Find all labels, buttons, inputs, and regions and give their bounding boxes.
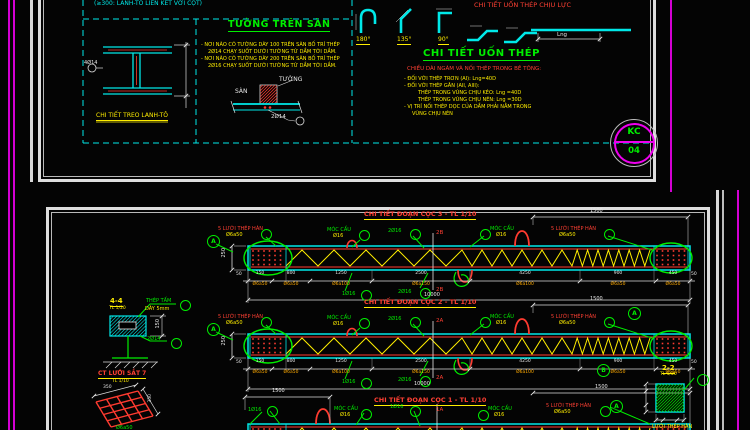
callout-circle [359, 318, 370, 329]
stamp-code: KC [611, 127, 657, 137]
pile-dim-spacing: Ø6a100 [326, 371, 356, 376]
pile2-bar2-label-bottom: 2Ø16 [398, 378, 411, 383]
pile3-bar2-label: 2Ø16 [388, 229, 401, 234]
bend-detail-subtitle: CHIỀU DÀI NGÀM VÀ NỐI THÉP TRONG BÊ TÔNG… [407, 67, 541, 73]
slab-bar-label: 2Ø14 [271, 115, 286, 121]
pile2-mesh-sub-right: Ø6a50 [559, 321, 576, 326]
slab-label: SÀN [235, 89, 248, 95]
pile2-section-tick-bottom: 2A [436, 376, 443, 382]
pile3-edge-dim-right: 50 [691, 273, 697, 278]
pile2-edge-dim-left: 50 [236, 361, 242, 366]
cad-canvas: (≥300: LANH-TÔ LIÊN KẾT VỚI CỘT) 4Ø14 CH… [0, 0, 750, 430]
pile-dim-value: 4250 [510, 360, 540, 365]
pile2-dim-250: 250 [222, 336, 227, 346]
pile3-edge-dim-left: 50 [236, 273, 242, 278]
pile-dim-spacing: Ø6a50 [245, 371, 275, 376]
pile1-mesh-sub-right: Ø6a50 [554, 410, 571, 415]
pile-dim-spacing: Ø6a50 [658, 371, 688, 376]
callout-circle [410, 317, 421, 328]
pile2-total-dim: 10000 [414, 382, 430, 387]
wall-on-slab-title: TƯỜNG TRÊN SÀN [228, 20, 330, 32]
pile-dim-spacing: Ø6a50 [276, 371, 306, 376]
pile-dim-value: 450 [658, 360, 688, 365]
pile-dim-spacing: Ø6a100 [326, 283, 356, 288]
pile1-bar1-label-mid: 1Ø16 [390, 405, 403, 410]
plate-label: THÉP TẤM [146, 299, 171, 304]
pile-dim-spacing: Ø6a100 [510, 371, 540, 376]
callout-circle [410, 229, 421, 240]
pile1-hook-sub-1: Ø16 [340, 413, 350, 418]
sheet-number-stamp: KC 04 [610, 119, 658, 167]
pile3-flag-a: A [207, 235, 220, 248]
section-2-2-bottom-label: LƯỚI THÉP HÀN [652, 425, 692, 430]
pile-dim-value: 4250 [510, 272, 540, 277]
callout-circle [359, 230, 370, 241]
bend-note-line: - ĐỐI VỚI THÉP TRƠN (AI): Lng=40D [404, 77, 496, 82]
pile1-bar1-label-left: 1Ø16 [248, 408, 261, 413]
bend-note-line: VÙNG CHỊU NÉN [412, 112, 453, 117]
callout-circle [604, 317, 615, 328]
wall-note-line: 2Ø14 CHẠY SUỐT DƯỚI TƯỜNG TỪ DẦM TỚI DẦM… [208, 50, 337, 55]
pile3-bar1-label-bottom: 1Ø16 [342, 292, 355, 297]
pile-dim-value: 900 [603, 272, 633, 277]
bend-angle-90: 90° [438, 37, 449, 45]
pile1-hook-sub-2: Ø16 [494, 413, 504, 418]
lintel-bar-label: 4Ø14 [84, 61, 97, 66]
pile-dim-spacing: Ø6a100 [510, 283, 540, 288]
pile-dim-spacing: Ø6a50 [276, 283, 306, 288]
pile-dim-value: 900 [603, 360, 633, 365]
pile1-dim-1500-right: 1500 [595, 385, 608, 390]
wall-note-line: - NƠI NÀO CÓ TƯỜNG DÀY 200 TRÊN SÀN BỐ T… [201, 57, 340, 62]
pile3-mesh-sub-right: Ø6a50 [559, 233, 576, 238]
pile3-mesh-sub-left: Ø6a50 [226, 233, 243, 238]
pile-dim-value: 800 [276, 272, 306, 277]
pile1-section-tick-top: 1A [436, 408, 443, 414]
bend-detail-title: CHI TIẾT UỐN THÉP [423, 49, 540, 61]
pile2-dim-1500: 1500 [590, 297, 603, 302]
pile1-flag-a-right: A [610, 400, 623, 413]
pile2-edge-dim-right: 50 [691, 361, 697, 366]
mesh-detail-scale: TL 1/10 [112, 380, 129, 385]
bend-note-line: - ĐỐI VỚI THÉP GÂN (AII, AIII): [404, 84, 480, 89]
pile2-bar2-label: 2Ø16 [388, 317, 401, 322]
wall-note-line: - NƠI NÀO CÓ TƯỜNG DÀY 100 TRÊN SÀN BỐ T… [201, 43, 340, 48]
mesh-sub-label: Ø6a50 [116, 426, 133, 430]
bend-note-line: - VỊ TRÍ NỐI THÉP DỌC CỦA DẦM PHẢI NẰM T… [404, 105, 531, 110]
pile-dim-value: 150 [245, 360, 275, 365]
pile3-bar2-label-bottom: 2Ø16 [398, 290, 411, 295]
lng-dim-label: Lng [557, 33, 567, 39]
pile3-hook-sub-2: Ø16 [496, 233, 506, 238]
pile-dim-value: 1250 [326, 272, 356, 277]
callout-circle [361, 378, 372, 389]
callout-circle [261, 317, 272, 328]
pile-dim-value: 2500 [406, 360, 436, 365]
pile2-hook-sub-1: Ø16 [333, 322, 343, 327]
pile3-hook-sub-1: Ø16 [333, 234, 343, 239]
pile-dim-value: 150 [245, 272, 275, 277]
callout-circle [171, 338, 182, 349]
callout-circle [361, 409, 372, 420]
pile2-flag-a-right: A [628, 307, 641, 320]
plate-bar-label: 2Ø14 [147, 337, 160, 342]
pile-dim-value: 1250 [326, 360, 356, 365]
callout-circle [604, 229, 615, 240]
pile2-mesh-sub-left: Ø6a50 [226, 321, 243, 326]
pile2-section-tick-top: 2A [436, 319, 443, 325]
pile-dim-spacing: Ø6a50 [603, 283, 633, 288]
callout-circle [261, 229, 272, 240]
section-4-4-scale: TL 1/20 [109, 307, 126, 312]
bend-note-line: THÉP TRONG VÙNG CHỊU NÉN: Lng =30D [418, 98, 522, 103]
pile-dim-spacing: Ø6a50 [245, 283, 275, 288]
plate-dim-150: 150 [156, 319, 161, 329]
pile-dim-value: 800 [276, 360, 306, 365]
callout-circle [697, 374, 709, 386]
bend-note-line: THÉP TRONG VÙNG CHỊU KÉO: Lng =40D [418, 91, 521, 96]
pile-dim-spacing: Ø6a150 [406, 371, 436, 376]
wall-note-line: 2Ø16 CHẠY SUỐT DƯỚI TƯỜNG TỪ DẦM TỚI DẦM… [208, 64, 337, 69]
callout-circle [180, 300, 191, 311]
pile3-dim-1500: 1500 [590, 209, 603, 214]
pile3-title: CHI TIẾT ĐOẠN CỌC 3 - TL 1/10 [364, 211, 476, 220]
mesh-dim-350a: 350 [103, 386, 112, 391]
bend-angle-180: 180° [356, 37, 370, 45]
pile2-hook-sub-2: Ø16 [496, 321, 506, 326]
pile2-bar1-label-bottom: 1Ø16 [342, 380, 355, 385]
pile-dim-spacing: Ø6a50 [658, 283, 688, 288]
wall-label: TƯỜNG [279, 77, 302, 83]
lintel-note: (≥300: LANH-TÔ LIÊN KẾT VỚI CỘT) [94, 1, 202, 7]
mesh-detail-title: CT LƯỚI SẮT 7 [98, 371, 146, 379]
pile3-section-tick-top: 2B [436, 231, 443, 237]
stamp-divider [614, 141, 654, 143]
pile-dim-value: 450 [658, 272, 688, 277]
callout-circle [267, 406, 278, 417]
callout-circle [410, 406, 421, 417]
pile2-title: CHI TIẾT ĐOẠN CỌC 2 - TL 1/10 [364, 299, 476, 308]
stamp-number: 04 [611, 146, 657, 156]
pile2-flag-a: A [207, 323, 220, 336]
pile-dim-spacing: Ø6a150 [406, 283, 436, 288]
pile-dim-value: 2500 [406, 272, 436, 277]
bend-angle-135: 135° [397, 37, 411, 45]
lintel-detail-title: CHI TIẾT TREO LANH-TÔ [96, 113, 168, 121]
bend-detail-top-title: CHI TIẾT UỐN THÉP CHỊU LỰC [474, 2, 571, 9]
mesh-dim-350b: 350 [149, 394, 154, 403]
pile1-dim-1500-left: 1500 [272, 389, 285, 394]
pile3-dim-250: 250 [222, 248, 227, 258]
pile-dim-spacing: Ø6a50 [603, 371, 633, 376]
plate-thickness-label: DÀY 5mm [145, 307, 169, 312]
